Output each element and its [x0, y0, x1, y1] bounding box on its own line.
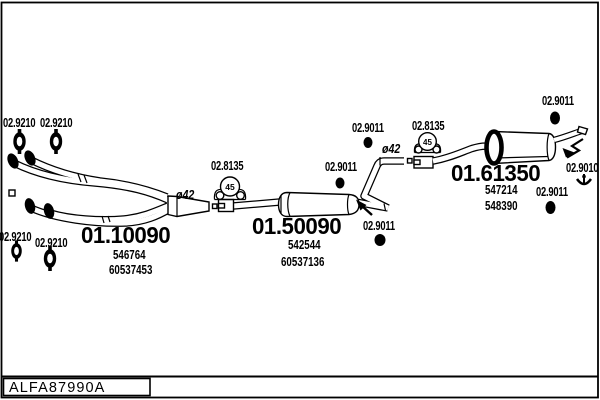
- clamp-icon-front: 45: [214, 177, 245, 200]
- exhaust-parts-diagram: 45 45: [0, 0, 600, 400]
- silencer-end-cap: [487, 132, 502, 164]
- part-code-clamp: 02.8135: [211, 159, 243, 172]
- part-code-gasket: 02.9210: [35, 236, 67, 249]
- mount-icon: [550, 112, 560, 125]
- part-number-center-silencer: 01.50090: [252, 215, 341, 238]
- part-number-front-pipe: 01.10090: [81, 224, 170, 247]
- mount-icon: [364, 137, 373, 148]
- mount-icon: [375, 234, 386, 246]
- clamp-icon-rear: 45: [414, 133, 440, 153]
- gasket-icon: [50, 129, 62, 154]
- part-ref: 60537136: [281, 255, 324, 268]
- part-code-clamp: 02.8135: [412, 119, 444, 132]
- part-ref: 548390: [485, 199, 518, 212]
- part-ref: 542544: [288, 238, 321, 251]
- center-silencer-assembly: [219, 157, 413, 217]
- gasket-icon: [13, 129, 25, 154]
- part-code-mount: 02.9011: [542, 94, 574, 107]
- part-code-mount: 02.9011: [325, 160, 357, 173]
- mount-icon: [546, 201, 556, 214]
- bolt-square: [9, 190, 15, 196]
- part-ref: 60537453: [109, 263, 152, 276]
- front-pipe-assembly: [5, 149, 217, 223]
- part-code-gasket: 02.9210: [40, 116, 72, 129]
- pipe-diameter-label: ø42: [382, 143, 400, 156]
- part-code-mount: 02.9011: [536, 185, 568, 198]
- part-code-hook: 02.9010: [566, 161, 598, 174]
- part-code-mount: 02.9011: [352, 121, 384, 134]
- clamp-size-label: 45: [225, 182, 235, 192]
- mount-icon: [336, 178, 345, 189]
- part-code-mount: 02.9011: [363, 219, 395, 232]
- drawing-code: ALFA87990A: [9, 381, 105, 396]
- part-code-gasket: 02.9210: [3, 116, 35, 129]
- joint-square: [408, 159, 413, 164]
- part-ref: 546764: [113, 248, 146, 261]
- clamp-size-label: 45: [423, 138, 432, 147]
- part-ref: 547214: [485, 183, 518, 196]
- pipe-diameter-label: ø42: [176, 189, 194, 202]
- hook-bracket-icon: [577, 174, 591, 184]
- joint-square: [213, 204, 218, 209]
- part-code-gasket: 02.9210: [0, 230, 31, 243]
